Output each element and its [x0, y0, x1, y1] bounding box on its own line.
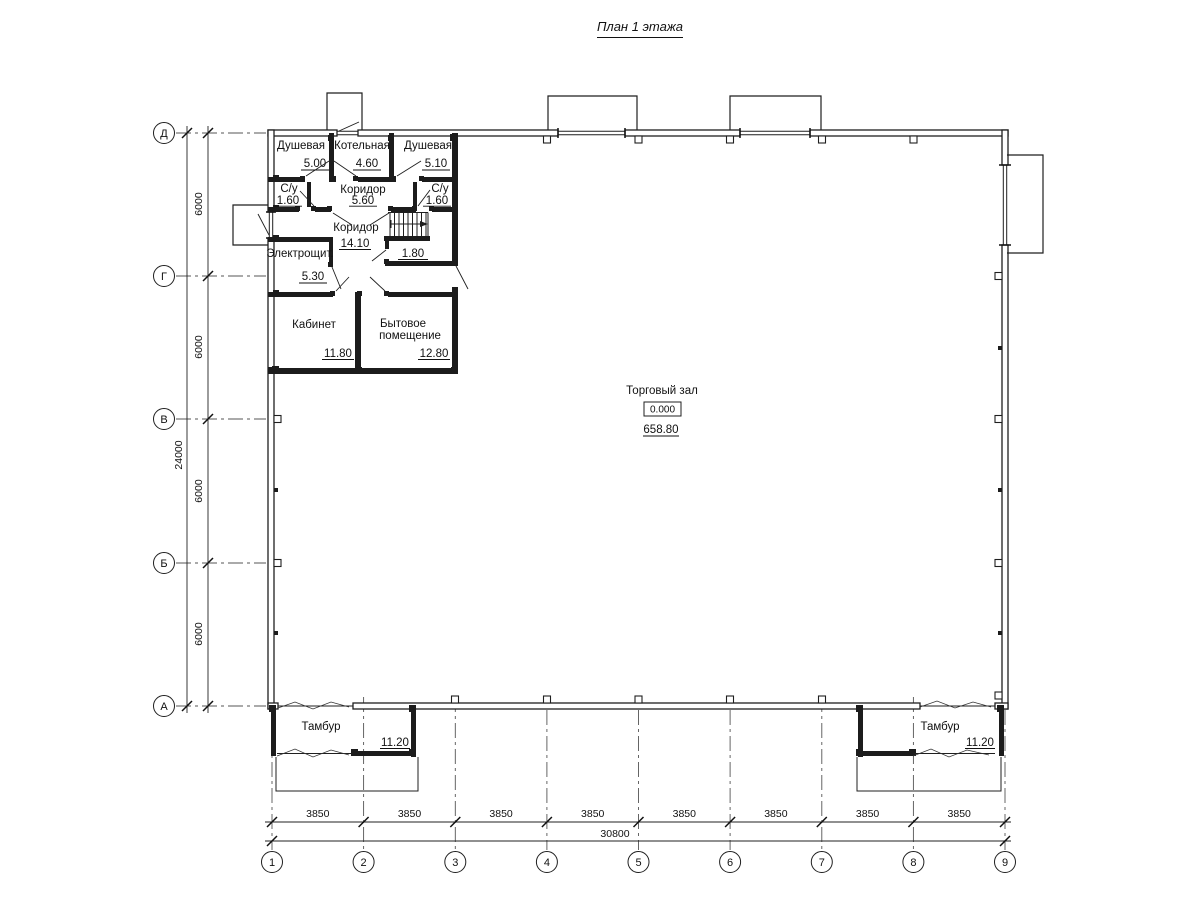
axis-row-v: В: [160, 414, 167, 426]
svg-text:24000: 24000: [173, 440, 185, 469]
svg-text:11.20: 11.20: [381, 737, 409, 749]
axis-col-5: 5: [635, 857, 641, 869]
axis-bubbles-rows: Д Г В Б А: [154, 123, 175, 717]
svg-text:1.60: 1.60: [277, 195, 299, 207]
drawing-title: План 1 этажа: [597, 19, 683, 38]
axis-col-8: 8: [910, 857, 916, 869]
room-label-office: Кабинет 11.80: [292, 319, 354, 360]
svg-text:С/у: С/у: [280, 183, 298, 195]
porch-right: [857, 757, 1001, 791]
room-label-store: 1.80: [398, 248, 428, 260]
svg-text:Душевая: Душевая: [404, 140, 452, 152]
svg-text:1.60: 1.60: [426, 195, 448, 207]
room-label-shower-left: Душевая 5.00: [277, 140, 329, 170]
room-label-wc-left: С/у 1.60: [274, 183, 302, 207]
svg-text:3850: 3850: [306, 808, 330, 820]
svg-text:6000: 6000: [193, 335, 205, 359]
svg-text:5.10: 5.10: [425, 158, 447, 170]
dimension-bottom: 3850 3850 3850 3850 3850 3850 3850 3850 …: [265, 808, 1011, 846]
room-label-corridor-main: Коридор 14.10: [333, 222, 378, 250]
svg-text:6000: 6000: [193, 622, 205, 646]
axis-col-7: 7: [819, 857, 825, 869]
svg-text:Торговый зал: Торговый зал: [626, 385, 698, 397]
floor-plan-sheet: План 1 этажа: [0, 0, 1200, 900]
svg-text:1.80: 1.80: [402, 248, 424, 260]
stair-flight: [388, 213, 428, 237]
room-label-tambour-left: Тамбур 11.20: [301, 721, 410, 749]
axis-row-g: Г: [161, 271, 167, 283]
axis-col-9: 9: [1002, 857, 1008, 869]
room-label-utility: Бытовое помещение 12.80: [379, 318, 450, 360]
svg-text:6000: 6000: [193, 192, 205, 216]
svg-text:30800: 30800: [600, 828, 629, 840]
svg-text:11.80: 11.80: [324, 348, 352, 360]
axis-col-2: 2: [361, 857, 367, 869]
svg-text:Душевая: Душевая: [277, 140, 325, 152]
svg-text:3850: 3850: [581, 808, 605, 820]
axis-col-4: 4: [544, 857, 550, 869]
axis-col-6: 6: [727, 857, 733, 869]
perimeter-walls: [268, 130, 1008, 709]
room-label-shower-right: Душевая 5.10: [404, 140, 452, 170]
axis-row-b: Б: [160, 558, 167, 570]
svg-text:3850: 3850: [948, 808, 972, 820]
column-markers: [274, 136, 1002, 703]
svg-text:3850: 3850: [489, 808, 513, 820]
dimension-left: 6000 6000 6000 6000 24000: [173, 126, 213, 713]
porch-left: [276, 757, 418, 791]
svg-text:4.60: 4.60: [356, 158, 378, 170]
floor-plan-drawing: План 1 этажа: [0, 0, 1200, 900]
svg-text:Коридор: Коридор: [333, 222, 378, 234]
svg-text:Тамбур: Тамбур: [920, 721, 959, 733]
svg-text:5.00: 5.00: [304, 158, 326, 170]
svg-text:Котельная: Котельная: [334, 140, 390, 152]
svg-text:3850: 3850: [856, 808, 880, 820]
svg-text:Электрощит.: Электрощит.: [266, 248, 333, 260]
svg-text:5.30: 5.30: [302, 271, 324, 283]
room-label-corridor-small: Коридор 5.60: [340, 184, 385, 207]
svg-text:11.20: 11.20: [966, 737, 994, 749]
room-label-electro: Электрощит. 5.30: [266, 248, 333, 283]
axis-col-1: 1: [269, 857, 275, 869]
svg-text:Бытовое: Бытовое: [380, 318, 426, 330]
svg-text:5.60: 5.60: [352, 195, 374, 207]
axis-row-a: А: [160, 701, 168, 713]
axis-bubbles-cols: 1 2 3 4 5 6 7 8 9: [262, 852, 1016, 873]
room-label-tambour-right: Тамбур 11.20: [920, 721, 995, 749]
room-label-boiler: Котельная 4.60: [334, 140, 390, 170]
room-labels: Душевая 5.00 Котельная 4.60 Душевая 5.10…: [266, 140, 995, 749]
svg-text:С/у: С/у: [431, 183, 449, 195]
axis-col-3: 3: [452, 857, 458, 869]
title-text: План 1 этажа: [597, 19, 683, 34]
svg-text:3850: 3850: [673, 808, 697, 820]
level-mark: 0.000: [650, 405, 675, 416]
axis-row-d: Д: [160, 128, 168, 140]
svg-text:12.80: 12.80: [420, 348, 449, 360]
svg-text:3850: 3850: [764, 808, 788, 820]
stair-direction-arrow: [391, 220, 428, 228]
svg-text:помещение: помещение: [379, 330, 441, 342]
room-label-sales-hall: Торговый зал 0.000 658.80: [626, 385, 698, 436]
svg-text:6000: 6000: [193, 479, 205, 503]
svg-text:658.80: 658.80: [643, 424, 678, 436]
svg-text:Кабинет: Кабинет: [292, 319, 336, 331]
svg-text:Тамбур: Тамбур: [301, 721, 340, 733]
svg-text:14.10: 14.10: [341, 238, 370, 250]
svg-text:3850: 3850: [398, 808, 422, 820]
room-label-wc-right: С/у 1.60: [423, 183, 451, 207]
